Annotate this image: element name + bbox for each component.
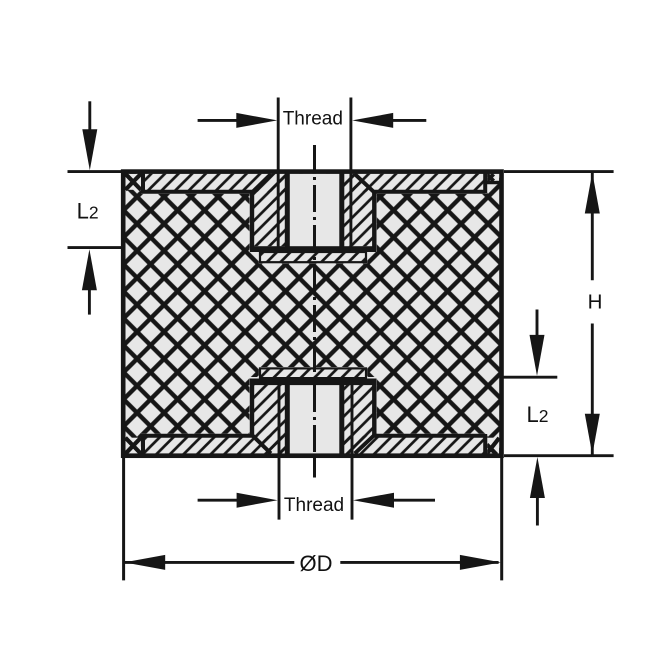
svg-text:H: H xyxy=(588,291,603,314)
svg-text:ØD: ØD xyxy=(300,551,333,576)
svg-text:Thread: Thread xyxy=(283,109,343,130)
svg-text:L2: L2 xyxy=(77,199,99,224)
svg-text:L2: L2 xyxy=(527,402,549,427)
svg-text:Thread: Thread xyxy=(284,495,344,516)
